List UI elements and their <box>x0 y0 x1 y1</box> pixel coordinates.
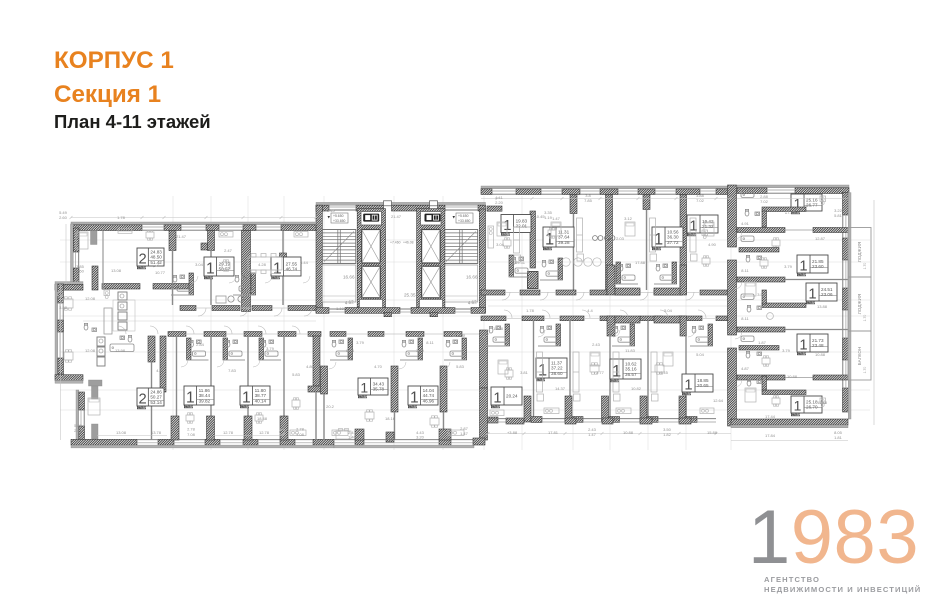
svg-text:СТУДИЯ: СТУДИЯ <box>611 379 622 383</box>
svg-text:1.47: 1.47 <box>552 216 561 221</box>
svg-text:17.88: 17.88 <box>635 260 646 265</box>
svg-text:25.35: 25.35 <box>404 293 416 298</box>
svg-text:4.11: 4.11 <box>156 368 164 373</box>
svg-text:ЛОДЖИЯ: ЛОДЖИЯ <box>857 294 862 314</box>
svg-text:8.11: 8.11 <box>741 316 749 321</box>
svg-text:1: 1 <box>799 259 807 275</box>
svg-text:2.77: 2.77 <box>596 370 605 375</box>
svg-text:2.47: 2.47 <box>224 248 233 253</box>
svg-text:23.06: 23.06 <box>821 292 833 297</box>
svg-text:СТУДИЯ: СТУДИЯ <box>205 276 216 280</box>
svg-text:1.70: 1.70 <box>863 367 867 374</box>
svg-text:19.31: 19.31 <box>515 260 526 265</box>
svg-text:1.87: 1.87 <box>758 340 767 345</box>
svg-text:17.44: 17.44 <box>765 414 776 419</box>
svg-text:СТУДИЯ: СТУДИЯ <box>807 301 818 305</box>
svg-text:7.85: 7.85 <box>584 198 593 203</box>
svg-text:1: 1 <box>242 390 251 407</box>
svg-text:СТУДИЯ: СТУДИЯ <box>138 406 149 410</box>
svg-text:3.04: 3.04 <box>496 242 505 247</box>
svg-text:12.64: 12.64 <box>713 398 724 403</box>
svg-text:3.79: 3.79 <box>266 346 275 351</box>
svg-text:18.48: 18.48 <box>257 416 268 421</box>
svg-text:3.70: 3.70 <box>416 348 425 353</box>
svg-text:4.70: 4.70 <box>374 364 383 369</box>
svg-text:2.60: 2.60 <box>59 215 68 220</box>
svg-text:2.84: 2.84 <box>196 342 205 347</box>
svg-text:1: 1 <box>684 378 692 394</box>
svg-text:39.82: 39.82 <box>199 398 211 403</box>
svg-text:39.28: 39.28 <box>558 240 570 245</box>
svg-text:4.45: 4.45 <box>660 370 669 375</box>
svg-text:12.87: 12.87 <box>815 236 826 241</box>
svg-text:2: 2 <box>139 392 147 408</box>
svg-text:2.43: 2.43 <box>592 342 601 347</box>
svg-text:5.04: 5.04 <box>744 326 753 331</box>
svg-text:СТУДИЯ: СТУДИЯ <box>544 247 555 251</box>
svg-text:2.67: 2.67 <box>74 428 83 433</box>
svg-text:1: 1 <box>273 261 282 278</box>
svg-text:1.19: 1.19 <box>336 306 345 311</box>
svg-text:1: 1 <box>808 287 816 303</box>
svg-text:21.47: 21.47 <box>391 214 402 219</box>
svg-text:17.45: 17.45 <box>785 210 796 215</box>
svg-text:СТУДИЯ: СТУДИЯ <box>241 405 252 409</box>
svg-text:СТУДИЯ: СТУДИЯ <box>798 352 809 356</box>
svg-text:1.19: 1.19 <box>448 306 457 311</box>
svg-text:16.66: 16.66 <box>343 275 355 280</box>
svg-text:7.83: 7.83 <box>228 368 237 373</box>
svg-text:17.81: 17.81 <box>548 430 559 435</box>
svg-text:36.57: 36.57 <box>625 372 637 377</box>
svg-text:-0.45: -0.45 <box>535 214 545 219</box>
svg-text:+46.08: +46.08 <box>403 240 414 244</box>
svg-text:20.24: 20.24 <box>506 394 518 399</box>
svg-text:3.88: 3.88 <box>59 305 68 310</box>
svg-text:+7.460: +7.460 <box>390 240 401 244</box>
svg-text:17.84: 17.84 <box>765 433 776 438</box>
svg-text:37.72: 37.72 <box>667 240 679 245</box>
svg-text:СТУДИЯ: СТУДИЯ <box>359 395 370 399</box>
svg-text:38.60: 38.60 <box>551 371 563 376</box>
svg-text:3.12: 3.12 <box>624 216 633 221</box>
svg-text:СТУДИЯ: СТУДИЯ <box>653 247 664 251</box>
svg-text:5.81: 5.81 <box>834 213 843 218</box>
svg-text:7.02: 7.02 <box>696 198 705 203</box>
svg-text:47.19: 47.19 <box>453 333 465 338</box>
svg-text:1: 1 <box>206 261 215 278</box>
svg-text:1: 1 <box>410 390 419 407</box>
svg-text:26.77: 26.77 <box>806 203 818 208</box>
svg-text:46.74: 46.74 <box>286 267 298 272</box>
svg-text:ЛОДЖИЯ: ЛОДЖИЯ <box>857 242 862 262</box>
svg-text:СТУДИЯ: СТУДИЯ <box>272 276 283 280</box>
svg-text:23.60: 23.60 <box>812 264 824 269</box>
svg-text:22.01: 22.01 <box>516 224 528 229</box>
svg-text:СТУДИЯ: СТУДИЯ <box>138 266 149 270</box>
svg-text:5.04: 5.04 <box>664 308 673 313</box>
svg-text:+5.650: +5.650 <box>458 214 469 218</box>
svg-text:4.62: 4.62 <box>467 299 477 305</box>
svg-text:3.04: 3.04 <box>195 262 204 267</box>
svg-text:1.81: 1.81 <box>834 435 843 440</box>
svg-text:4.91: 4.91 <box>741 221 750 226</box>
svg-text:3.20: 3.20 <box>416 435 425 440</box>
svg-text:11.83: 11.83 <box>625 348 635 353</box>
svg-text:21.47: 21.47 <box>176 234 187 239</box>
svg-text:1: 1 <box>360 380 368 396</box>
svg-text:2.78: 2.78 <box>187 427 196 432</box>
svg-text:1: 1 <box>493 391 501 407</box>
svg-text:13.08: 13.08 <box>111 268 122 273</box>
svg-text:СТУДИЯ: СТУДИЯ <box>537 378 548 382</box>
svg-text:18.16: 18.16 <box>385 416 396 421</box>
svg-text:1.47: 1.47 <box>588 432 597 437</box>
svg-text:5.04: 5.04 <box>696 352 705 357</box>
svg-text:1.70: 1.70 <box>863 263 867 270</box>
svg-text:+3.88: +3.88 <box>507 430 518 435</box>
svg-text:12.78: 12.78 <box>223 430 234 435</box>
svg-text:6.44: 6.44 <box>300 260 309 265</box>
svg-text:1: 1 <box>689 219 697 235</box>
svg-text:16.66: 16.66 <box>466 275 478 280</box>
svg-text:СТУДИЯ: СТУДИЯ <box>185 405 196 409</box>
svg-text:3.79: 3.79 <box>784 264 793 269</box>
svg-text:5.83: 5.83 <box>292 372 301 377</box>
svg-text:1: 1 <box>799 338 807 354</box>
svg-text:3.79: 3.79 <box>782 348 791 353</box>
svg-text:СТУДИЯ: СТУДИЯ <box>683 392 694 396</box>
svg-text:+33.650: +33.650 <box>333 219 345 223</box>
svg-text:14.37: 14.37 <box>555 386 566 391</box>
svg-text:4.87: 4.87 <box>741 366 750 371</box>
svg-text:3.81: 3.81 <box>520 370 529 375</box>
svg-text:СТУДИЯ: СТУДИЯ <box>798 273 809 277</box>
svg-text:13.08: 13.08 <box>116 430 127 435</box>
svg-text:3.79: 3.79 <box>356 340 365 345</box>
svg-text:20.65: 20.65 <box>697 383 709 388</box>
svg-text:13.78: 13.78 <box>151 430 162 435</box>
svg-text:1: 1 <box>545 231 554 249</box>
svg-text:13.88: 13.88 <box>817 304 828 309</box>
svg-text:12.08: 12.08 <box>85 296 96 301</box>
svg-text:2.78: 2.78 <box>296 427 305 432</box>
svg-text:3.5: 3.5 <box>757 292 763 297</box>
svg-text:8.11: 8.11 <box>741 268 749 273</box>
svg-text:7.08: 7.08 <box>187 432 196 437</box>
svg-text:4.28: 4.28 <box>258 262 267 267</box>
svg-text:8.11: 8.11 <box>426 340 434 345</box>
svg-text:12.08: 12.08 <box>85 348 96 353</box>
svg-text:7.08: 7.08 <box>296 432 305 437</box>
svg-text:+5.650: +5.650 <box>333 214 344 218</box>
svg-text:4.80: 4.80 <box>306 364 315 369</box>
svg-text:10.77: 10.77 <box>155 270 166 275</box>
svg-text:СТУДИЯ: СТУДИЯ <box>409 405 420 409</box>
svg-text:15.88: 15.88 <box>817 400 828 405</box>
svg-text:1.70: 1.70 <box>863 315 867 322</box>
svg-text:СТУДИЯ: СТУДИЯ <box>688 233 699 237</box>
svg-text:СТУДИЯ: СТУДИЯ <box>792 413 803 417</box>
svg-text:1.78: 1.78 <box>117 215 126 220</box>
svg-text:40.14: 40.14 <box>255 398 267 403</box>
svg-text:2: 2 <box>139 252 147 268</box>
svg-text:12.78: 12.78 <box>259 430 270 435</box>
svg-text:13.28: 13.28 <box>493 326 504 331</box>
svg-text:1.78: 1.78 <box>526 308 535 313</box>
svg-text:10.88: 10.88 <box>623 430 634 435</box>
svg-text:+33.650: +33.650 <box>458 219 470 223</box>
svg-text:4.4: 4.4 <box>587 308 593 313</box>
svg-text:15.88: 15.88 <box>707 430 718 435</box>
svg-text:8.84: 8.84 <box>346 348 355 353</box>
svg-text:13.98: 13.98 <box>115 348 126 353</box>
svg-text:10.82: 10.82 <box>631 386 642 391</box>
svg-text:1.47: 1.47 <box>460 431 469 436</box>
svg-text:20.2: 20.2 <box>326 404 335 409</box>
svg-text:1: 1 <box>186 390 195 407</box>
svg-text:46.96: 46.96 <box>423 398 435 403</box>
svg-text:БАЛКОН: БАЛКОН <box>857 347 862 366</box>
svg-text:4.90: 4.90 <box>708 242 717 247</box>
svg-text:1.40: 1.40 <box>348 435 357 440</box>
svg-text:2.60: 2.60 <box>76 269 85 274</box>
svg-text:СТУДИЯ: СТУДИЯ <box>492 405 503 409</box>
svg-text:35.78: 35.78 <box>373 387 385 392</box>
svg-text:26.70: 26.70 <box>806 405 818 410</box>
svg-text:1.82: 1.82 <box>663 432 672 437</box>
svg-text:4.62: 4.62 <box>344 299 354 305</box>
svg-text:23.48: 23.48 <box>812 343 824 348</box>
svg-text:7.02: 7.02 <box>760 199 769 204</box>
svg-text:2.20: 2.20 <box>495 200 504 205</box>
svg-text:10.88: 10.88 <box>815 352 826 357</box>
svg-text:2.03: 2.03 <box>616 236 625 241</box>
svg-text:1: 1 <box>794 398 802 414</box>
svg-text:-0.45: -0.45 <box>325 208 335 213</box>
svg-text:10.88: 10.88 <box>787 374 798 379</box>
svg-text:5.83: 5.83 <box>456 364 465 369</box>
